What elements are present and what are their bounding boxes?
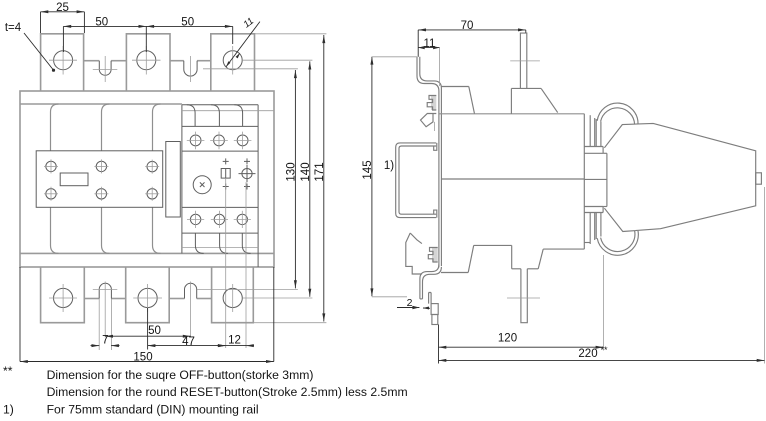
svg-text:50: 50 — [95, 16, 108, 28]
svg-text:25: 25 — [56, 2, 69, 14]
svg-text:130: 130 — [286, 162, 298, 181]
svg-text:11: 11 — [424, 38, 436, 50]
svg-text:140: 140 — [300, 162, 312, 181]
svg-text:50: 50 — [148, 325, 161, 337]
svg-text:145: 145 — [362, 160, 374, 179]
svg-text:11: 11 — [241, 16, 256, 31]
svg-text:120: 120 — [498, 333, 517, 345]
svg-text:12: 12 — [228, 335, 241, 347]
svg-text:50: 50 — [181, 16, 194, 28]
svg-text:1): 1) — [384, 160, 394, 172]
svg-text:Dimension for the round RESET-: Dimension for the round RESET-button(Str… — [47, 385, 408, 399]
svg-text:**: ** — [600, 345, 608, 355]
svg-text:For 75mm standard (DIN) mounti: For 75mm standard (DIN) mounting rail — [47, 402, 259, 416]
svg-text:171: 171 — [314, 162, 326, 181]
svg-text:**: ** — [3, 364, 13, 378]
svg-text:Dimension for the suqre OFF-bu: Dimension for the suqre OFF-button(stork… — [47, 368, 314, 382]
svg-text:70: 70 — [461, 20, 474, 32]
svg-text:150: 150 — [133, 351, 152, 363]
svg-text:47: 47 — [182, 336, 195, 348]
svg-text:220: 220 — [578, 348, 597, 360]
svg-text:1): 1) — [3, 402, 14, 416]
svg-text:t=4: t=4 — [5, 22, 22, 34]
